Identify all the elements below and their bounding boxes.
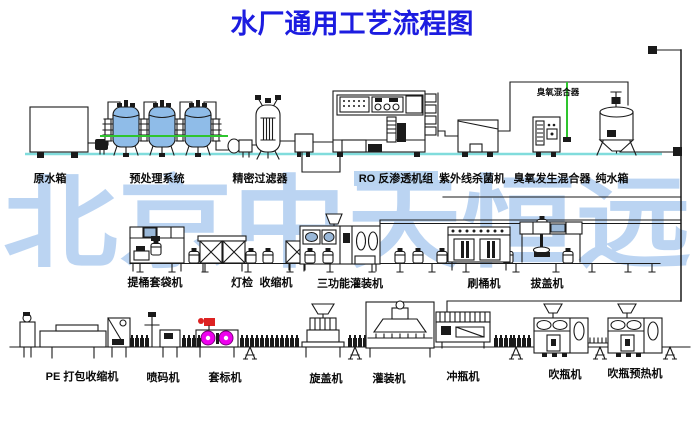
label-light-inspection: 灯检 — [231, 275, 253, 289]
label-raw-water-tank: 原水箱 — [34, 171, 67, 185]
label-precision-filter: 精密过滤器 — [233, 171, 289, 185]
label-ro-unit: RO 反渗透机组 — [359, 171, 434, 185]
label-bucket-bagging: 提桶套袋机 — [128, 275, 183, 289]
label-bottle-blower: 吹瓶机 — [549, 367, 582, 381]
ozone-generator-mixer — [533, 117, 560, 157]
page-title: 水厂通用工艺流程图 — [231, 9, 474, 39]
label-bottle-rinser: 冲瓶机 — [447, 369, 480, 383]
label-filler: 灌装机 — [373, 371, 406, 385]
label-uv-sterilizer: 紫外线杀菌机 — [439, 171, 505, 185]
process-flow-diagram: 北京中天恒远 — [0, 0, 695, 436]
label-shrink-machine: 收缩机 — [260, 275, 293, 289]
label-three-function-filler: 三功能灌装机 — [317, 276, 383, 290]
label-capper: 旋盖机 — [309, 371, 343, 385]
label-bottle-preheater: 吹瓶预热机 — [608, 366, 663, 380]
label-pe-pack-shrink: PE 打包收缩机 — [46, 369, 119, 383]
label-bucket-brusher: 刷桶机 — [468, 276, 501, 290]
label-pure-water-tank: 纯水箱 — [596, 171, 629, 185]
label-labeler: 套标机 — [209, 370, 242, 384]
process-flow-page: 北京中天恒远 — [0, 0, 695, 436]
label-cap-remover: 拔盖机 — [531, 276, 564, 290]
label-pretreatment: 预处理系统 — [130, 171, 185, 185]
label-ozone-mixer-pipe: 臭氧混合器 — [537, 87, 580, 97]
label-inkjet-coder: 喷码机 — [147, 370, 180, 384]
label-ozone-generator: 臭氧发生混合器 — [514, 171, 592, 185]
